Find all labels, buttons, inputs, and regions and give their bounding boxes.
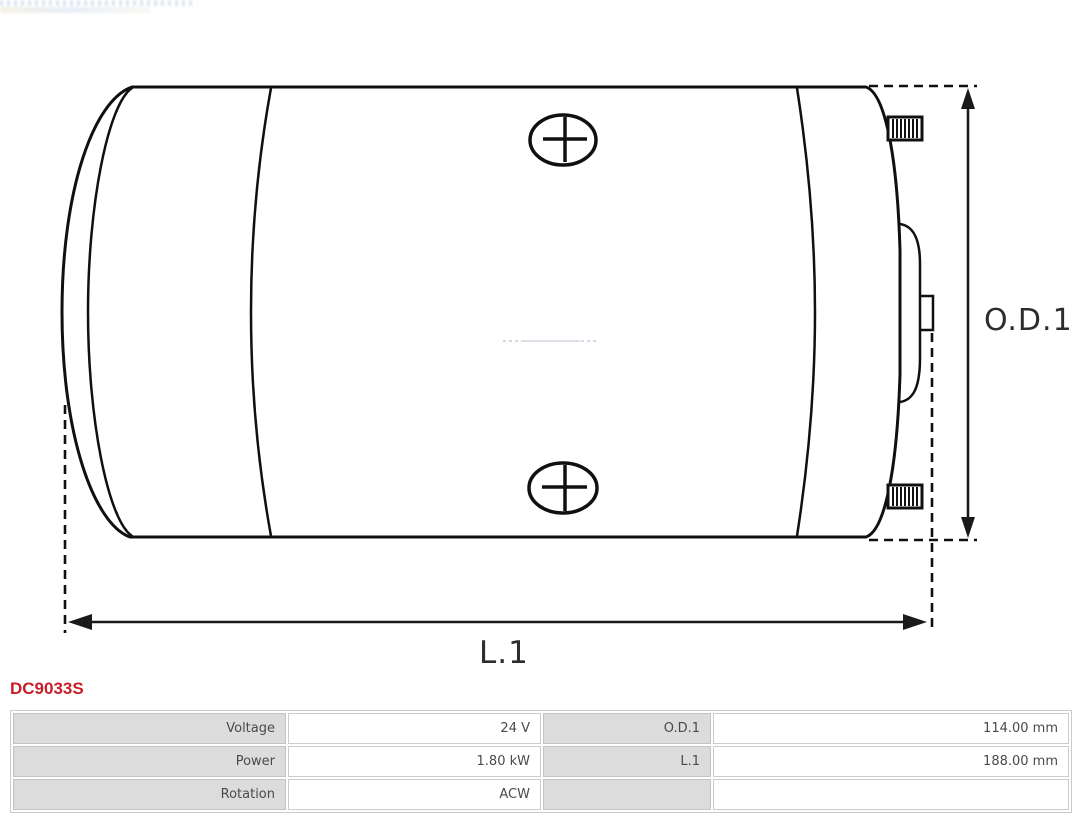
spec-label-power: Power: [13, 746, 286, 777]
spec-value-rotation: ACW: [288, 779, 541, 810]
phillips-screw-top-icon: [530, 115, 596, 165]
l1-dimension-arrow: [68, 614, 927, 630]
spec-row-1: Voltage 24 V O.D.1 114.00 mm: [13, 713, 1069, 744]
spec-value-l1: 188.00 mm: [713, 746, 1069, 777]
page: O.D.1 L.1 DC9033S Voltage 24 V O.D.1 114…: [0, 0, 1080, 817]
left-dome-seam-line: [88, 88, 132, 536]
terminal-stud-bottom-icon: [888, 485, 922, 508]
spec-label-voltage: Voltage: [13, 713, 286, 744]
motor-body-outline: [62, 87, 900, 537]
spec-value-power: 1.80 kW: [288, 746, 541, 777]
spec-table: Voltage 24 V O.D.1 114.00 mm Power 1.80 …: [10, 710, 1072, 813]
left-body-seam-line: [251, 88, 271, 536]
spec-value-od1: 114.00 mm: [713, 713, 1069, 744]
spec-label-rotation: Rotation: [13, 779, 286, 810]
l1-dimension-label: L.1: [479, 635, 529, 671]
od1-dimension-arrow: [961, 88, 975, 538]
bearing-housing-bulge: [900, 224, 920, 402]
terminal-stud-top-icon: [888, 117, 922, 140]
od1-dimension-label: O.D.1: [984, 303, 1073, 338]
spec-value-empty: [713, 779, 1069, 810]
spec-label-empty: [543, 779, 711, 810]
phillips-screw-bottom-icon: [529, 463, 597, 513]
spec-row-2: Power 1.80 kW L.1 188.00 mm: [13, 746, 1069, 777]
spec-label-od1: O.D.1: [543, 713, 711, 744]
spec-value-voltage: 24 V: [288, 713, 541, 744]
right-body-seam-line: [797, 88, 815, 536]
shaft-stub: [920, 296, 933, 330]
spec-label-l1: L.1: [543, 746, 711, 777]
spec-row-3: Rotation ACW: [13, 779, 1069, 810]
part-number-title: DC9033S: [10, 679, 84, 699]
motor-technical-drawing: O.D.1 L.1: [0, 0, 1080, 676]
